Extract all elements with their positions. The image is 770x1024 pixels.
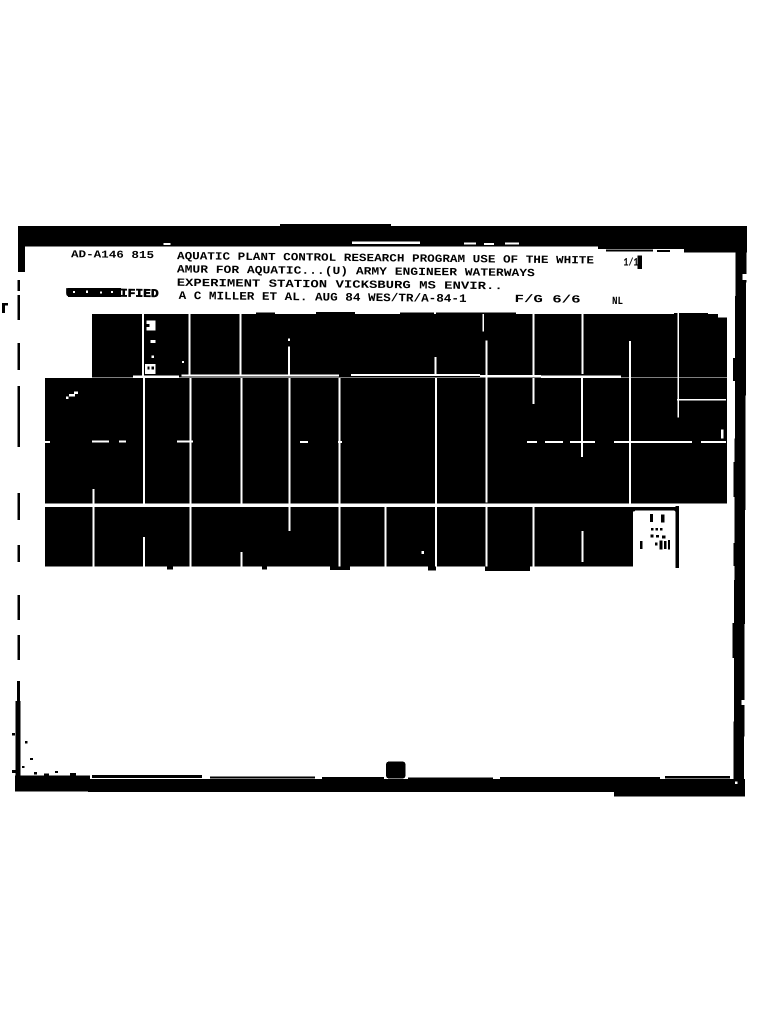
- svg-text:F/G 6/6: F/G 6/6: [515, 294, 581, 307]
- svg-text:AD-A146 815: AD-A146 815: [71, 249, 154, 262]
- svg-text:NL: NL: [612, 296, 623, 308]
- svg-text:1/1: 1/1: [624, 257, 639, 269]
